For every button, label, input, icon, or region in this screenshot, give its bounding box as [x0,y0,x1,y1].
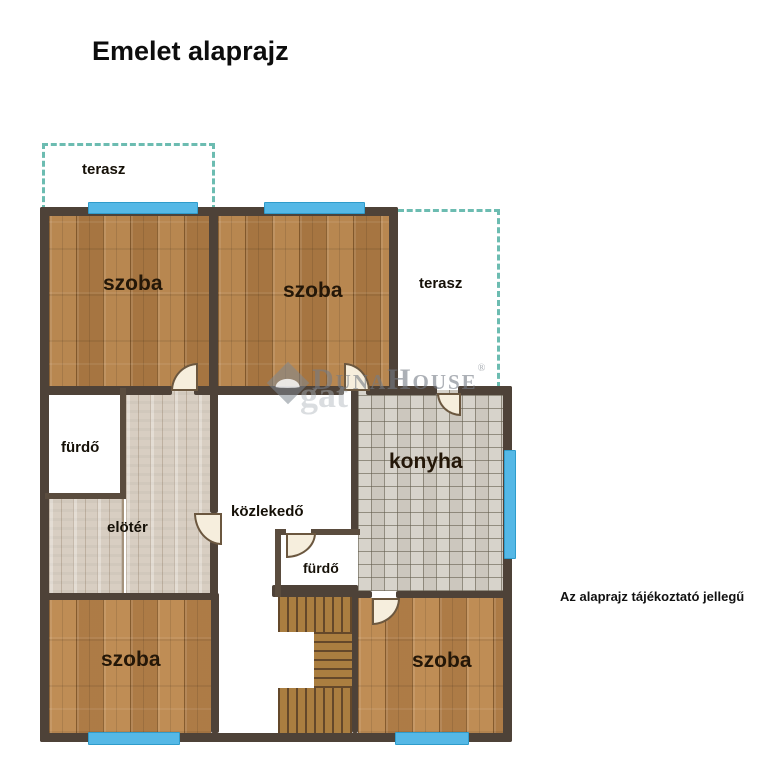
stairs-middle-flight [314,632,352,688]
label-terrace-top: terasz [82,161,125,178]
floor-kitchen [358,390,503,591]
label-room-bottom-right: szoba [412,649,472,673]
wall-stairs-top [272,585,358,597]
label-bathroom-upper: fürdő [61,439,99,456]
wall-bathroom-lower-left [275,529,281,597]
window-top-left [88,202,198,214]
wall-kitchen-bottom-seg1 [352,591,372,598]
wall-foyer-hall-lower [210,541,218,596]
foyer-divider-line [122,499,124,593]
wall-between-top-rooms [209,207,218,395]
label-room-bottom-left: szoba [101,648,161,672]
watermark-swoosh-icon [276,379,300,388]
wall-stairs-right [352,585,358,733]
wall-room-bottom-left-top [45,593,215,600]
floor-foyer-left [49,499,122,593]
floor-foyer-column [126,390,210,593]
wall-outer-left [40,207,49,742]
stairs-lower-flight [278,688,352,733]
wall-room-bottom-left-right [211,593,219,733]
terrace-right-outline [398,209,500,388]
wall-mid-seg1 [40,386,172,395]
label-room-top-mid: szoba [283,279,343,303]
wall-room-top-mid-right [389,207,398,395]
wall-bathroom-upper-bottom [45,493,123,499]
wall-kitchen-bottom-seg2 [396,591,512,598]
window-bottom-right [395,732,469,745]
wall-outer-right [503,386,512,742]
page-title: Emelet alaprajz [92,36,289,67]
wall-foyer-hall-upper [210,393,218,513]
wall-bathroom-lower-top-seg2 [311,529,360,535]
stairs-upper-flight [278,597,352,632]
window-top-mid [264,202,365,214]
window-right-kitchen [504,450,516,559]
label-kitchen: konyha [389,450,463,474]
wall-mid-seg4 [458,386,512,395]
label-foyer: elötér [107,519,148,536]
label-terrace-right: terasz [419,275,462,292]
label-room-top-left: szoba [103,272,163,296]
wall-kitchen-left [351,388,358,535]
terrace-top-outline [42,143,215,211]
floor-room-top-left [49,216,209,388]
label-bathroom-lower: fürdő [303,560,339,576]
wall-bathroom-upper-right [120,388,126,499]
disclaimer-text: Az alaprajz tájékoztató jellegű [560,589,744,604]
wall-mid-seg3 [366,386,437,395]
label-hallway: közlekedő [231,503,304,520]
window-bottom-left [88,732,180,745]
